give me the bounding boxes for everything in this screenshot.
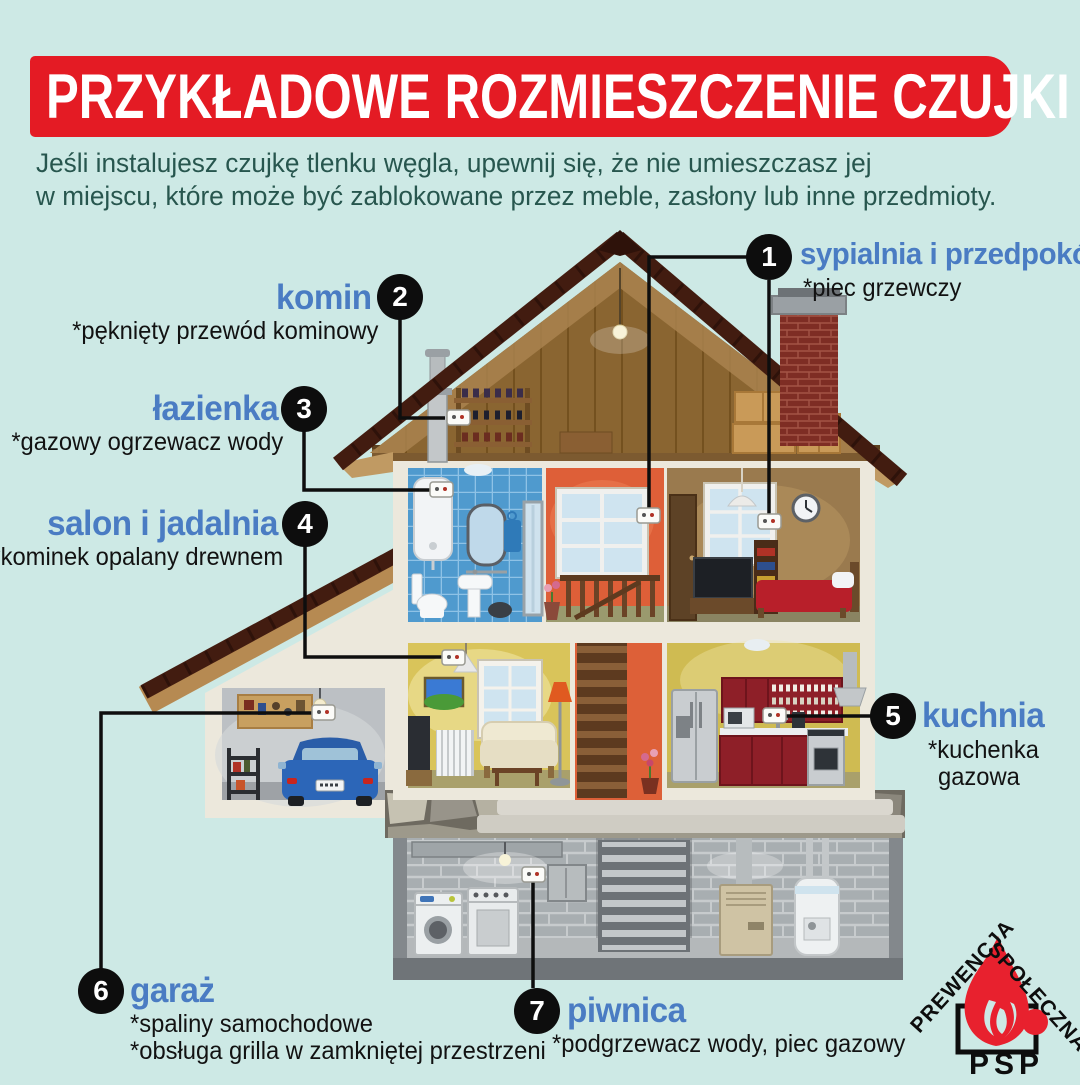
tv-bedroom (690, 558, 756, 614)
callout-1-detail: *piec grzewczy (803, 274, 961, 303)
detector-attic (447, 410, 470, 425)
fridge (672, 690, 717, 782)
radiator (436, 730, 474, 776)
detector-basement (522, 867, 545, 882)
callout-3-name: łazienka (152, 389, 278, 429)
detector-hallway (637, 508, 660, 523)
callout-1-number: 1 (746, 234, 792, 280)
tv-living (408, 716, 430, 772)
callout-6-name: garaż (130, 971, 214, 1011)
detector-garage (312, 705, 335, 720)
electrical-panel (548, 865, 586, 901)
callout-4-name: salon i jadalnia (47, 504, 278, 544)
detector-living-room (442, 650, 465, 665)
detector-bathroom (430, 482, 453, 497)
front-step-upper (497, 799, 893, 815)
callout-6-detail-2: *obsługa grilla w zamkniętej przestrzeni (130, 1037, 546, 1066)
bathroom (408, 464, 542, 622)
attic-bench (560, 432, 612, 453)
garage (144, 551, 404, 818)
staircase (575, 643, 662, 800)
shower (524, 502, 542, 615)
callout-6-number: 6 (78, 968, 124, 1014)
dryer (468, 888, 518, 955)
callout-5-number: 5 (870, 693, 916, 739)
psp-prevention-logo: PREWENCJA SPOŁECZNA PSP (922, 930, 1080, 1080)
callout-7-name: piwnica (567, 991, 686, 1031)
callout-7-number: 7 (514, 988, 560, 1034)
laundry-basket (488, 602, 512, 618)
living-room (406, 643, 572, 788)
callout-5-name: kuchnia (922, 696, 1044, 736)
callout-7-detail: *podgrzewacz wody, piec gazowy (552, 1030, 905, 1059)
detector-bedroom (758, 514, 781, 529)
callout-2-number: 2 (377, 274, 423, 320)
chimney (772, 288, 846, 446)
stove (808, 730, 844, 785)
callout-3-number: 3 (281, 386, 327, 432)
kitchen-lower-cabinets (720, 736, 808, 785)
page-title: PRZYKŁADOWE ROZMIESZCZENIE CZUJKI (46, 56, 1070, 137)
callout-2-detail: *pęknięty przewód kominowy (72, 317, 378, 346)
washing-machine (415, 893, 462, 955)
bedroom (667, 468, 860, 622)
intro-line-2: w miejscu, które może być zablokowane pr… (36, 180, 996, 213)
hallway (544, 468, 664, 622)
logo-acronym: PSP (969, 1048, 1044, 1080)
hallway-window (556, 488, 648, 578)
flue-pipe (423, 349, 452, 462)
detector-kitchen (763, 708, 786, 723)
callout-4-number: 4 (282, 501, 328, 547)
callout-1-name: sypialnia i przedpokój (800, 236, 1080, 272)
callout-3-detail: *gazowy ogrzewacz wody (11, 428, 283, 457)
callout-5-detail-2: gazowa (938, 763, 1020, 792)
wall-clock (793, 495, 819, 521)
callout-6-detail: *spaliny samochodowe (130, 1010, 373, 1039)
front-step-lower (477, 815, 905, 833)
callout-4-detail: *kominek opalany drewnem (0, 543, 283, 572)
callout-2-name: komin (276, 278, 372, 318)
basement-stairs (598, 840, 690, 952)
callout-5-detail: *kuchenka (928, 736, 1039, 765)
intro-line-1: Jeśli instalujesz czujkę tlenku węgla, u… (36, 147, 872, 180)
